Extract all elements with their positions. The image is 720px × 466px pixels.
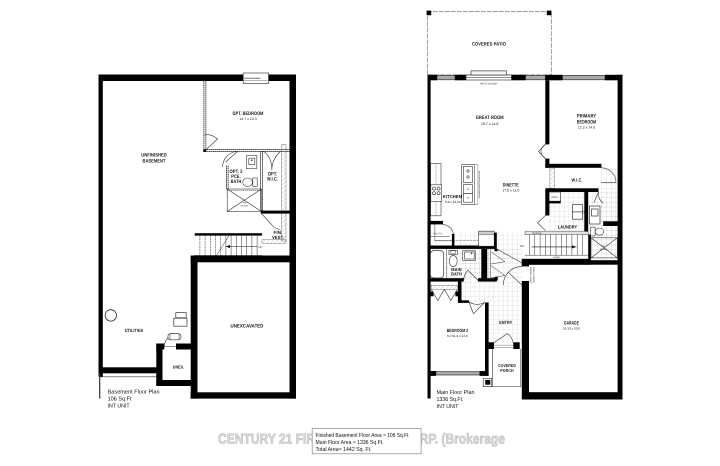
svg-text:LINEN: LINEN (551, 196, 558, 199)
svg-text:LAUNDRY: LAUNDRY (558, 225, 578, 230)
svg-text:Finished Basement Floor Area =: Finished Basement Floor Area = 106 Sq.Ft (316, 432, 409, 439)
svg-text:14.7 x 13.3: 14.7 x 13.3 (239, 117, 256, 121)
svg-text:Shower: Shower (240, 205, 248, 208)
svg-text:ENTRY: ENTRY (499, 320, 512, 325)
svg-text:BEDROOM: BEDROOM (577, 119, 597, 125)
svg-text:PATIO SLIDER: PATIO SLIDER (480, 83, 498, 86)
svg-text:UP: UP (259, 245, 263, 249)
svg-text:106 Sq.Ft: 106 Sq.Ft (108, 397, 132, 403)
svg-text:Main Floor Plan: Main Floor Plan (437, 389, 475, 396)
svg-text:Main Floor Area = 1336 Sq.Ft.: Main Floor Area = 1336 Sq.Ft. (316, 439, 384, 446)
svg-text:9-7/11-6 x 12-6: 9-7/11-6 x 12-6 (447, 334, 468, 338)
svg-text:UTILITIES: UTILITIES (125, 328, 144, 333)
svg-text:Basement Floor Plan: Basement Floor Plan (108, 389, 160, 396)
svg-text:17.0 x 11.0: 17.0 x 11.0 (502, 189, 519, 193)
svg-text:INT UNIT: INT UNIT (108, 404, 130, 410)
svg-text:Ledge: Ledge (553, 256, 561, 259)
svg-text:PORCH: PORCH (500, 368, 514, 373)
svg-text:10.10 x 20.0: 10.10 x 20.0 (563, 326, 580, 330)
svg-text:extended flush breakfast bar: extended flush breakfast bar (478, 170, 481, 198)
svg-text:UNEXCAVATED: UNEXCAVATED (231, 324, 264, 330)
svg-text:VEST.: VEST. (272, 235, 284, 240)
svg-text:Shower: Shower (600, 248, 608, 251)
svg-text:RAILING: RAILING (533, 232, 542, 235)
svg-text:UNDER STAIRS: UNDER STAIRS (533, 266, 536, 283)
svg-text:COVERED PATIO: COVERED PATIO (472, 42, 506, 48)
svg-text:BASEMENT: BASEMENT (143, 159, 166, 165)
svg-text:Total Area= 1442 Sq. Ft.: Total Area= 1442 Sq. Ft. (316, 446, 372, 453)
svg-text:PANTRY: PANTRY (433, 233, 443, 236)
svg-text:BATH: BATH (451, 272, 462, 277)
svg-text:KITCHEN: KITCHEN (443, 194, 462, 199)
svg-text:BATH: BATH (231, 179, 242, 185)
svg-text:W.I.C.: W.I.C. (572, 178, 583, 183)
svg-text:9.6 x 13.10: 9.6 x 13.10 (445, 200, 461, 204)
svg-text:DOOR HANGER: DOOR HANGER (530, 266, 533, 283)
svg-text:12.2 x 14.0: 12.2 x 14.0 (578, 126, 595, 130)
svg-text:GREAT ROOM: GREAT ROOM (476, 115, 504, 121)
svg-text:INT UNIT: INT UNIT (437, 404, 459, 410)
svg-text:UNEX.: UNEX. (173, 365, 185, 370)
svg-text:1336 Sq.Ft.: 1336 Sq.Ft. (437, 397, 464, 403)
svg-text:BEDROOM 2: BEDROOM 2 (447, 328, 469, 333)
svg-text:19.7 x 14.0: 19.7 x 14.0 (481, 122, 498, 126)
svg-text:DN: DN (520, 244, 524, 248)
svg-text:W.I.C.: W.I.C. (267, 176, 278, 182)
